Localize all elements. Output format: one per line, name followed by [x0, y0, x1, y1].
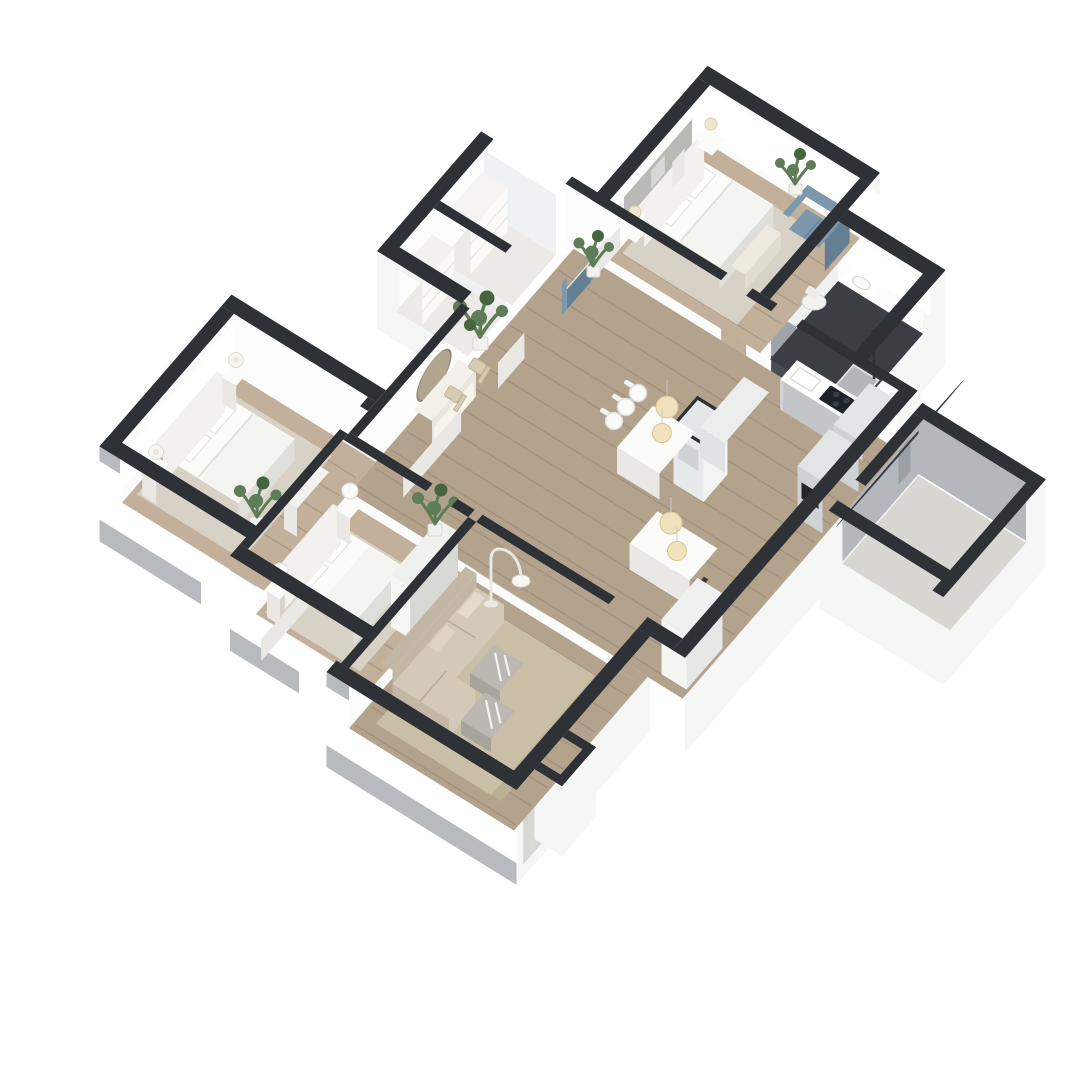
table-lamp: [229, 353, 244, 368]
floor-plan-3d: [0, 0, 1080, 1080]
floor-plan-canvas: [0, 0, 1080, 1080]
flower-lamp: [342, 483, 358, 499]
table-lamp: [705, 118, 717, 130]
table-lamp: [149, 445, 164, 460]
